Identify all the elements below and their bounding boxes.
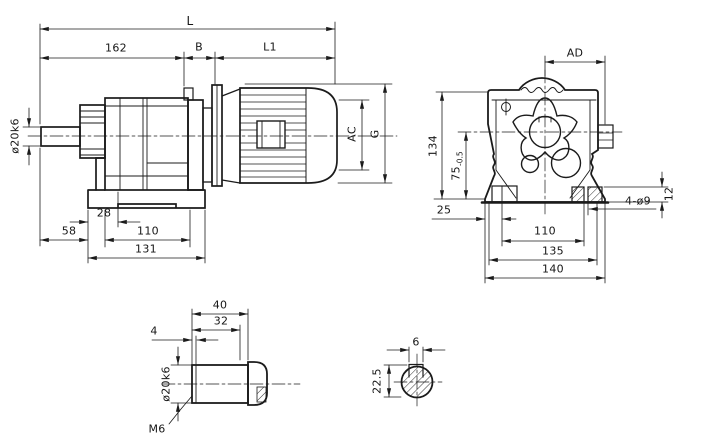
- shaft-cross-section: [384, 347, 445, 406]
- dim-thread-M6: M6: [148, 424, 165, 435]
- dim-58: 58: [62, 226, 77, 237]
- dim-28: 28: [97, 208, 112, 219]
- dim-12: 12: [664, 187, 675, 202]
- technical-drawing-canvas: L 162 B L1 ø20k6 AC G 28 58 110 131 AD 1…: [0, 0, 704, 441]
- dim-131: 131: [135, 244, 157, 255]
- mounting-foot: [88, 190, 205, 208]
- cross-section-geometry: [394, 354, 442, 406]
- dim-AD: AD: [567, 48, 584, 59]
- dim-162: 162: [105, 43, 127, 54]
- side-boss: [598, 125, 613, 148]
- dim-110-side: 110: [137, 226, 159, 237]
- shaft-detail-geometry: [162, 362, 300, 405]
- right-foot-section: [572, 187, 584, 202]
- dim-bolt-holes: 4-ø9: [625, 196, 651, 207]
- side-view: [23, 22, 397, 263]
- dim-key-width-6: 6: [412, 337, 419, 348]
- drawing-linework: [0, 0, 704, 441]
- dim-B: B: [195, 42, 203, 53]
- dim-75-tolerance: 75-0.5: [451, 151, 462, 180]
- dim-bore-height-22-5: 22.5: [372, 368, 383, 394]
- dim-134: 134: [428, 135, 439, 157]
- dim-shaft-diameter-detail: ø20k6: [161, 366, 172, 402]
- dim-110-front: 110: [534, 226, 556, 237]
- output-shaft: [41, 127, 80, 146]
- dim-L1: L1: [263, 42, 277, 53]
- dim-G: G: [370, 130, 381, 139]
- dim-40: 40: [213, 300, 228, 311]
- dim-32: 32: [214, 316, 229, 327]
- dim-AC: AC: [347, 126, 358, 142]
- dim-4: 4: [150, 326, 157, 337]
- phi-symbol: [502, 99, 511, 115]
- side-view-geometry: [28, 85, 397, 208]
- dim-25: 25: [437, 205, 452, 216]
- gear-boss-contour: [513, 98, 577, 160]
- dim-140: 140: [542, 264, 564, 275]
- dim-total-length-L: L: [187, 15, 194, 27]
- terminal-box: [257, 121, 285, 148]
- dim-shaft-diameter: ø20k6: [10, 118, 21, 154]
- dim-135: 135: [542, 246, 564, 257]
